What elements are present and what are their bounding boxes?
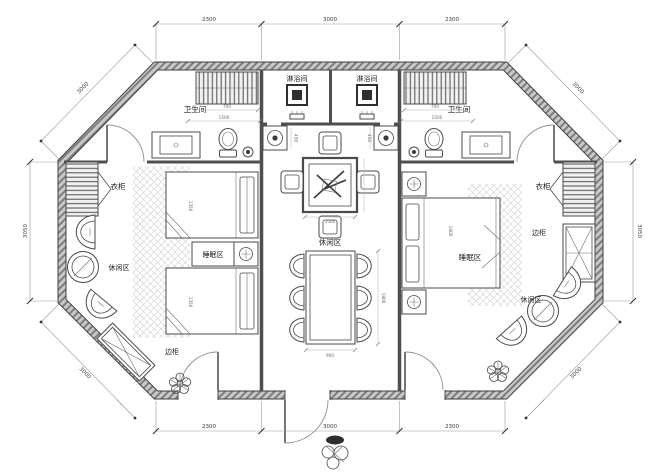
door-bathroom-right	[517, 125, 554, 162]
dim-top-center: 3000	[323, 17, 337, 23]
dim-bottom-center: 3000	[323, 424, 337, 430]
door-opening-entry	[285, 389, 330, 401]
dim-bath-left: 1500	[219, 115, 230, 120]
label-leisure-left: 休闲区	[109, 263, 130, 272]
lounge-chair-left-1	[76, 215, 95, 249]
stool-right	[357, 171, 379, 193]
label-bathroom-left: 卫生间	[184, 104, 207, 114]
vanity-left	[152, 132, 200, 158]
dining-chair-r2	[357, 286, 371, 310]
shower-head-right	[360, 111, 374, 119]
door-bathroom-left	[107, 125, 144, 162]
label-leisure-right: 休闲区	[521, 295, 542, 304]
door-opening-right	[405, 389, 445, 401]
stool-top	[319, 132, 341, 154]
dim-diag-bottom-right: 3000	[569, 366, 583, 380]
door-main-entry	[285, 400, 328, 443]
dim-closet-left: 700	[223, 104, 231, 109]
floor-plan-page: 淋浴间 淋浴间 卫生间 卫生间 衣柜 衣柜 睡眠区 睡眠区 休闲区 休闲区 休闲…	[0, 0, 651, 473]
toilet-right	[425, 129, 443, 158]
dim-dining-width: 900	[326, 353, 334, 358]
floor-plan-drawing: 淋浴间 淋浴间 卫生间 卫生间 衣柜 衣柜 睡眠区 睡眠区 休闲区 休闲区 休闲…	[0, 0, 651, 473]
dim-double-bed: 1800	[448, 226, 453, 237]
dining-table	[306, 251, 355, 344]
dining-chair-r3	[357, 318, 371, 342]
dining-chair-r1	[357, 254, 371, 278]
washbasin-right	[374, 126, 398, 150]
dim-diag-bottom-left: 3000	[78, 366, 92, 380]
label-wardrobe-left: 衣柜	[111, 181, 126, 191]
dimension-bottom: 2300 3000 2300	[153, 401, 508, 434]
shower-base-right	[357, 85, 377, 105]
dim-right: 3050	[636, 224, 642, 238]
lounge-chair-right-2	[496, 316, 534, 353]
plant-right	[487, 361, 508, 382]
lounge-table-left	[68, 252, 99, 283]
dimension-right: 3050	[599, 159, 642, 304]
dim-twin-bed-1: 1350	[188, 201, 193, 212]
dim-top-left: 2300	[202, 17, 216, 23]
dim-basin-left: 450	[294, 134, 299, 142]
label-wardrobe-right: 衣柜	[536, 181, 551, 191]
dimension-left: 3050	[23, 159, 58, 304]
label-shower-right: 淋浴间	[357, 74, 378, 83]
dim-dining-length: 1800	[381, 293, 386, 304]
dim-diag-top-left: 3000	[76, 81, 90, 95]
dim-twin-bed-2: 1350	[188, 297, 193, 308]
dining-chair-l1	[290, 254, 304, 278]
door-opening-left	[178, 389, 218, 401]
vanity-right	[462, 132, 510, 158]
dim-bottom-left: 2300	[202, 424, 216, 430]
label-leisure-center: 休闲区	[319, 237, 342, 247]
dim-bottom-right: 2300	[445, 424, 459, 430]
door-bedroom-left	[180, 352, 218, 390]
dim-left: 3050	[23, 224, 29, 238]
label-sleeping-right: 睡眠区	[459, 253, 482, 262]
nightstand-left	[234, 242, 258, 266]
wardrobe-left	[66, 162, 111, 216]
shower-base-left	[287, 85, 307, 105]
door-bedroom-right	[405, 352, 443, 390]
dim-top-right: 2300	[445, 17, 459, 23]
dim-diag-top-right: 3000	[571, 81, 585, 95]
toilet-left	[219, 129, 237, 158]
twin-bed-1	[166, 172, 258, 238]
label-sleeping-left: 睡眠区	[203, 251, 224, 259]
dimension-top: 2300 3000 2300	[153, 17, 508, 60]
wardrobe-right	[550, 162, 595, 216]
dim-tea-table: 1000	[325, 219, 336, 224]
nightstand-right-2	[402, 290, 426, 314]
shower-head-left	[290, 111, 304, 119]
dining-chair-l2	[290, 286, 304, 310]
stool-left	[281, 171, 303, 193]
tea-table	[303, 158, 357, 212]
nightstand-right-1	[402, 172, 426, 196]
dining-chair-l3	[290, 318, 304, 342]
double-bed	[402, 198, 500, 288]
label-side-cabinet-left: 边柜	[165, 347, 179, 356]
entry-sculpture	[322, 436, 348, 470]
label-shower-left: 淋浴间	[287, 74, 308, 83]
label-side-cabinet-right: 边柜	[532, 228, 546, 237]
dim-basin-right: 450	[367, 134, 372, 142]
dim-closet-right: 700	[431, 104, 439, 109]
twin-bed-2	[166, 268, 258, 334]
dim-bath-right: 1500	[432, 115, 443, 120]
left-suite	[66, 72, 258, 394]
washbasin-left	[263, 126, 287, 150]
